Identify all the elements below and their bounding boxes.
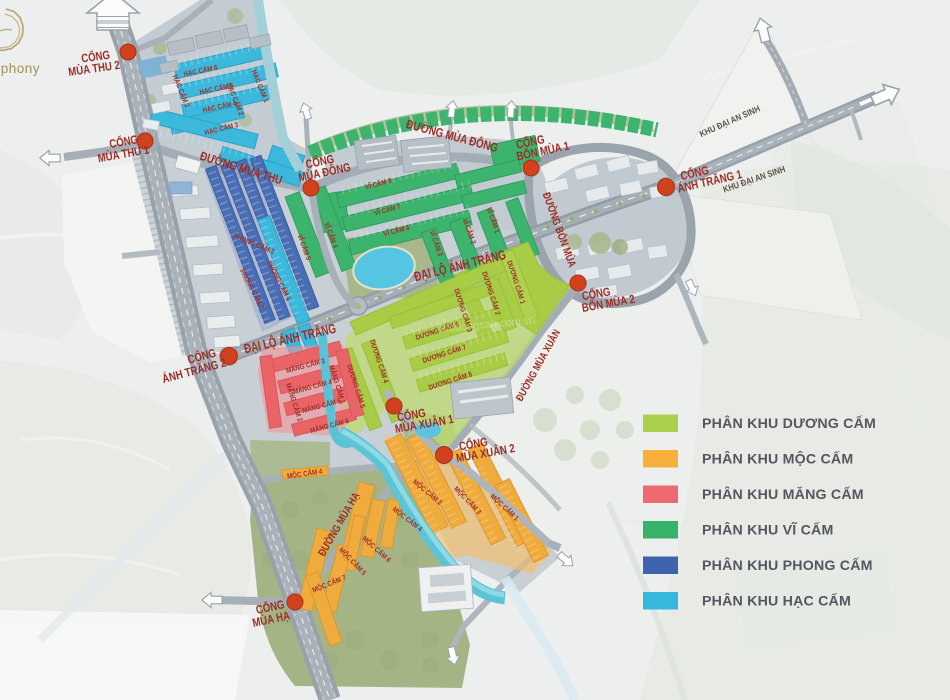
svg-text:PHÂN KHU DƯƠNG CẤM: PHÂN KHU DƯƠNG CẤM [702, 414, 876, 432]
svg-text:PHÂN KHU MỘC CẤM: PHÂN KHU MỘC CẤM [702, 450, 853, 468]
svg-text:PHÂN KHU PHONG CẤM: PHÂN KHU PHONG CẤM [702, 556, 873, 574]
svg-text:mphony: mphony [0, 61, 40, 76]
svg-text:PHÂN KHU VĨ CẤM: PHÂN KHU VĨ CẤM [702, 521, 833, 539]
svg-text:PHÂN KHU HẠC CẤM: PHÂN KHU HẠC CẤM [702, 592, 851, 610]
svg-text:PHÂN KHU MĂNG CẤM: PHÂN KHU MĂNG CẤM [702, 485, 864, 503]
